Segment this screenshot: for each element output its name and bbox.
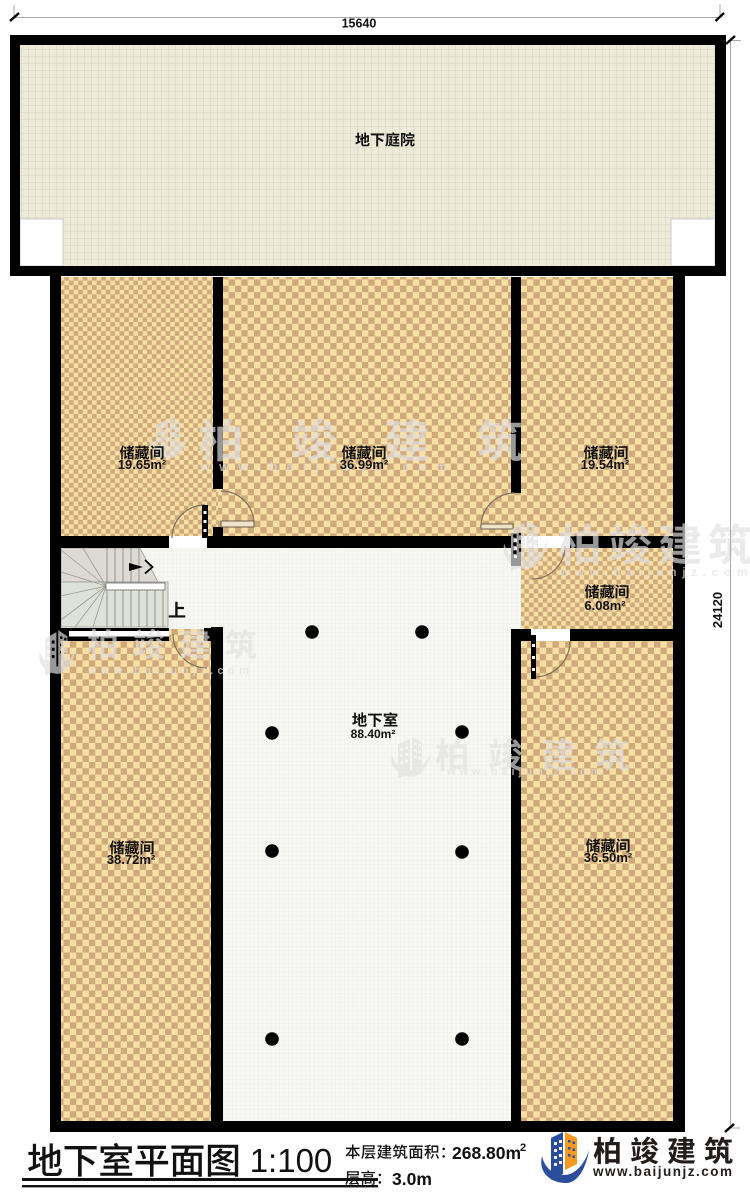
svg-text:19.54m²: 19.54m² xyxy=(581,457,630,472)
svg-text:3.0m: 3.0m xyxy=(392,1169,432,1189)
svg-text:36.50m²: 36.50m² xyxy=(584,850,633,865)
svg-text:www.baijunjz.com: www.baijunjz.com xyxy=(446,766,604,778)
svg-text:6.08m²: 6.08m² xyxy=(584,598,626,613)
svg-text:268.80m: 268.80m xyxy=(452,1143,521,1163)
svg-text:2: 2 xyxy=(520,1142,526,1154)
svg-text:19.65m²: 19.65m² xyxy=(118,457,167,472)
svg-text:www.baijunjz.com: www.baijunjz.com xyxy=(592,1164,734,1179)
svg-text:www.baijunjz.com: www.baijunjz.com xyxy=(87,665,253,677)
svg-text:www.baijunjz.com: www.baijunjz.com xyxy=(199,459,456,474)
svg-text:38.72m²: 38.72m² xyxy=(107,852,156,867)
svg-text:24120: 24120 xyxy=(710,592,725,628)
svg-text:15640: 15640 xyxy=(342,17,377,31)
svg-text:www.baijunjz.com: www.baijunjz.com xyxy=(559,565,750,579)
svg-text:1:100: 1:100 xyxy=(250,1142,333,1179)
svg-text:36.99m²: 36.99m² xyxy=(340,457,389,472)
svg-text:88.40m²: 88.40m² xyxy=(351,727,396,741)
